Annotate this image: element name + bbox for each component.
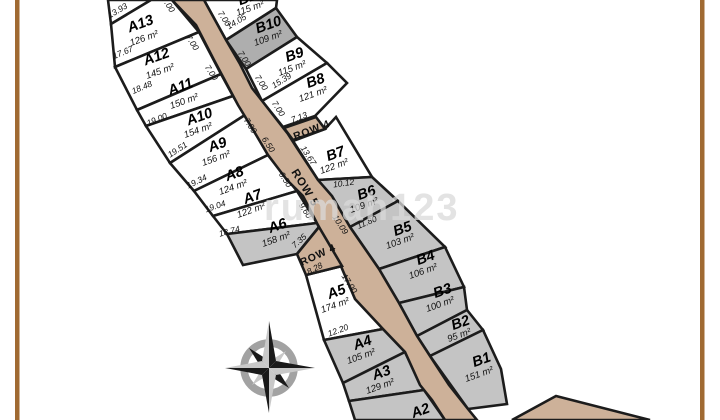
svg-text:rumah123: rumah123: [264, 187, 460, 229]
